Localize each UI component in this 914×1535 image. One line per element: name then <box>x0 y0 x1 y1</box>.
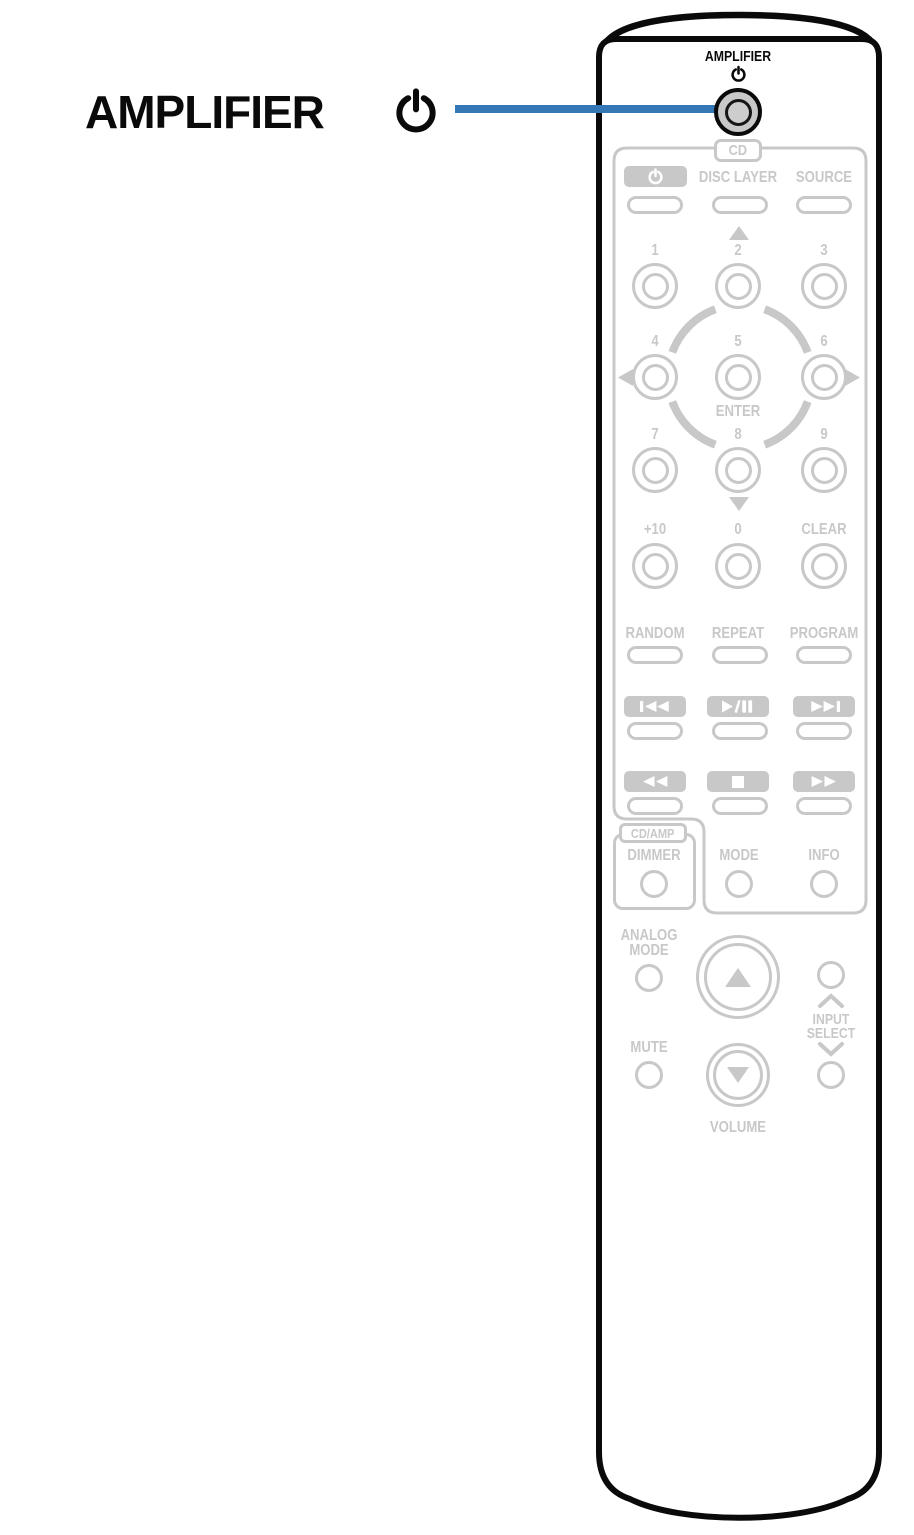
amplifier-button-label: AMPLIFIER <box>681 49 796 64</box>
callout-line <box>455 105 717 113</box>
skip-forward-icon <box>809 701 840 712</box>
power-icon <box>730 65 747 83</box>
cd-amp-tag: CD/AMP <box>619 823 687 843</box>
cd-power-plate[interactable] <box>624 166 687 187</box>
digit-7-button-inner <box>642 457 669 484</box>
mode-button[interactable] <box>725 870 753 898</box>
analog-mode-button[interactable] <box>635 964 663 992</box>
program-label: PROGRAM <box>767 626 882 642</box>
digit-5-button-inner <box>725 364 752 391</box>
clear-button-inner <box>811 553 838 580</box>
digit-7-button[interactable] <box>632 447 678 493</box>
fast-forward-button[interactable] <box>796 797 852 815</box>
digit-8-button[interactable] <box>715 447 761 493</box>
volume-down-button[interactable] <box>706 1043 770 1107</box>
disc-layer-button[interactable] <box>712 196 768 214</box>
rewind-icon <box>641 776 669 787</box>
digit-8-label: 8 <box>697 427 779 443</box>
source-label: SOURCE <box>767 170 882 186</box>
digit-3-button[interactable] <box>801 263 847 309</box>
digit-6-button-inner <box>811 364 838 391</box>
program-button[interactable] <box>796 646 852 664</box>
volume-up-button-inner <box>704 943 772 1011</box>
source-button[interactable] <box>796 196 852 214</box>
analog-mode-label-line2: MODE <box>608 943 690 959</box>
mute-button[interactable] <box>635 1061 663 1089</box>
input-select-label-line2: SELECT <box>790 1026 872 1041</box>
dimmer-label: DIMMER <box>613 848 695 864</box>
manual-diagram-page: AMPLIFIER AMPLIFIER CD DISC LAYER SOURCE… <box>0 0 914 1535</box>
callout-label: AMPLIFIER <box>85 89 395 135</box>
input-select-up-button[interactable] <box>817 961 845 989</box>
plus10-label: +10 <box>614 522 696 538</box>
down-triangle-icon <box>727 1067 749 1083</box>
digit-1-button[interactable] <box>632 263 678 309</box>
digit-2-label: 2 <box>697 243 779 259</box>
amplifier-power-button-inner <box>725 99 752 126</box>
info-label: INFO <box>783 848 865 864</box>
digit-6-button[interactable] <box>801 354 847 400</box>
volume-down-button-inner <box>713 1050 763 1100</box>
rewind-button[interactable] <box>627 797 683 815</box>
cd-section-tag: CD <box>714 139 762 162</box>
digit-3-button-inner <box>811 273 838 300</box>
digit-1-button-inner <box>642 273 669 300</box>
power-icon <box>647 168 664 185</box>
digit-8-button-inner <box>725 457 752 484</box>
input-select-down-button[interactable] <box>817 1061 845 1089</box>
play-pause-plate[interactable] <box>707 696 769 717</box>
fast-forward-icon <box>810 776 838 787</box>
digit-4-button[interactable] <box>632 354 678 400</box>
up-triangle-icon <box>725 968 751 987</box>
volume-label: VOLUME <box>697 1120 779 1136</box>
stop-plate[interactable] <box>707 771 769 792</box>
rewind-plate[interactable] <box>624 771 686 792</box>
info-button[interactable] <box>810 870 838 898</box>
clear-label: CLEAR <box>783 522 865 538</box>
digit-9-button[interactable] <box>801 447 847 493</box>
repeat-button[interactable] <box>712 646 768 664</box>
mode-label: MODE <box>698 848 780 864</box>
digit-3-label: 3 <box>783 243 865 259</box>
dimmer-button[interactable] <box>640 870 668 898</box>
cd-power-button[interactable] <box>627 196 683 214</box>
fast-forward-plate[interactable] <box>793 771 855 792</box>
skip-back-button[interactable] <box>627 722 683 740</box>
digit-4-button-inner <box>642 364 669 391</box>
digit-2-button-inner <box>725 273 752 300</box>
digit-7-label: 7 <box>614 427 696 443</box>
skip-back-icon <box>640 701 671 712</box>
zero-label: 0 <box>697 522 779 538</box>
digit-5-button[interactable] <box>715 354 761 400</box>
plus10-button[interactable] <box>632 543 678 589</box>
stop-button[interactable] <box>712 797 768 815</box>
skip-forward-button[interactable] <box>796 722 852 740</box>
digit-2-button[interactable] <box>715 263 761 309</box>
skip-back-plate[interactable] <box>624 696 686 717</box>
digit-6-label: 6 <box>783 334 865 350</box>
digit-9-label: 9 <box>783 427 865 443</box>
digit-5-label: 5 <box>697 334 779 350</box>
enter-label: ENTER <box>697 404 779 420</box>
remote-line-art <box>0 0 914 1535</box>
random-button[interactable] <box>627 646 683 664</box>
amplifier-power-button[interactable] <box>714 88 762 136</box>
play-pause-icon <box>722 700 754 713</box>
mute-label: MUTE <box>608 1040 690 1056</box>
stop-icon <box>732 776 744 788</box>
power-icon <box>392 87 440 135</box>
clear-button[interactable] <box>801 543 847 589</box>
volume-up-button[interactable] <box>696 935 780 1019</box>
plus10-button-inner <box>642 553 669 580</box>
digit-1-label: 1 <box>614 243 696 259</box>
play-pause-button[interactable] <box>712 722 768 740</box>
skip-forward-plate[interactable] <box>793 696 855 717</box>
digit-9-button-inner <box>811 457 838 484</box>
zero-button-inner <box>725 553 752 580</box>
zero-button[interactable] <box>715 543 761 589</box>
digit-4-label: 4 <box>614 334 696 350</box>
